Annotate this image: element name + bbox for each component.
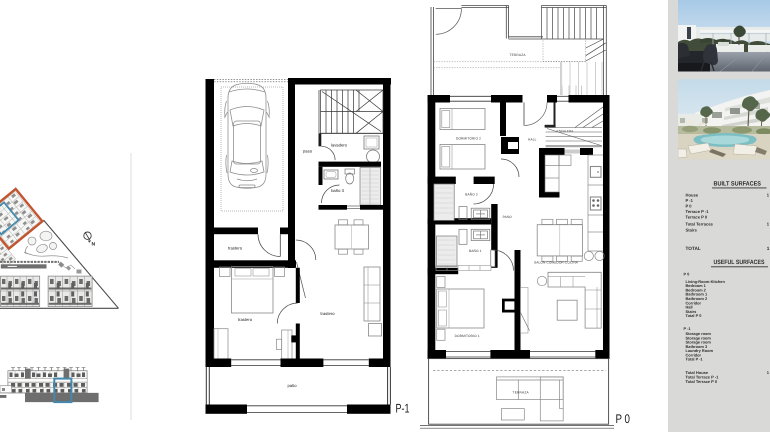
- svg-text:Terrace P -1: Terrace P -1: [686, 209, 710, 214]
- svg-text:HALL: HALL: [528, 138, 537, 142]
- svg-text:TOTAL: TOTAL: [686, 246, 701, 251]
- svg-text:Terrace P 0: Terrace P 0: [686, 214, 708, 219]
- svg-text:trastero: trastero: [320, 311, 335, 316]
- svg-text:USEFUL SURFACES: USEFUL SURFACES: [714, 259, 765, 266]
- svg-text:House: House: [686, 192, 699, 197]
- svg-text:DORMITORIO 2: DORMITORIO 2: [456, 137, 481, 141]
- svg-text:Stairs: Stairs: [686, 227, 698, 232]
- svg-text:Total P 0: Total P 0: [686, 313, 702, 318]
- svg-text:baño 3: baño 3: [331, 188, 344, 193]
- svg-text:Total Terraces: Total Terraces: [686, 222, 714, 227]
- svg-text:paso: paso: [303, 149, 313, 154]
- svg-text:Total P -1: Total P -1: [686, 357, 704, 362]
- svg-text:trastero: trastero: [238, 317, 253, 322]
- svg-text:PASO: PASO: [503, 215, 513, 219]
- svg-text:P-1: P-1: [396, 401, 410, 415]
- svg-text:P 0: P 0: [684, 271, 690, 276]
- svg-text:P 0: P 0: [686, 203, 693, 208]
- svg-text:DORMITORIO 1: DORMITORIO 1: [455, 334, 480, 338]
- svg-text:ESCALERA: ESCALERA: [557, 129, 574, 133]
- svg-text:Total Terrace P 0: Total Terrace P 0: [686, 379, 718, 384]
- svg-text:BUILT SURFACES: BUILT SURFACES: [714, 180, 762, 187]
- svg-text:TERRAZA: TERRAZA: [513, 391, 530, 395]
- svg-text:P 0: P 0: [616, 412, 631, 426]
- svg-text:1: 1: [767, 246, 770, 251]
- svg-text:TERRAZA: TERRAZA: [509, 53, 526, 57]
- svg-text:P -1: P -1: [686, 198, 694, 203]
- svg-text:lavadero: lavadero: [331, 143, 348, 148]
- svg-text:BAÑO 2: BAÑO 2: [465, 192, 478, 196]
- svg-text:trastero: trastero: [228, 245, 243, 250]
- svg-text:BAÑO 1: BAÑO 1: [469, 249, 482, 253]
- svg-text:SALON-COMEDOR-COCINA: SALON-COMEDOR-COCINA: [534, 261, 579, 265]
- svg-text:N: N: [92, 242, 96, 248]
- svg-text:patio: patio: [287, 383, 297, 388]
